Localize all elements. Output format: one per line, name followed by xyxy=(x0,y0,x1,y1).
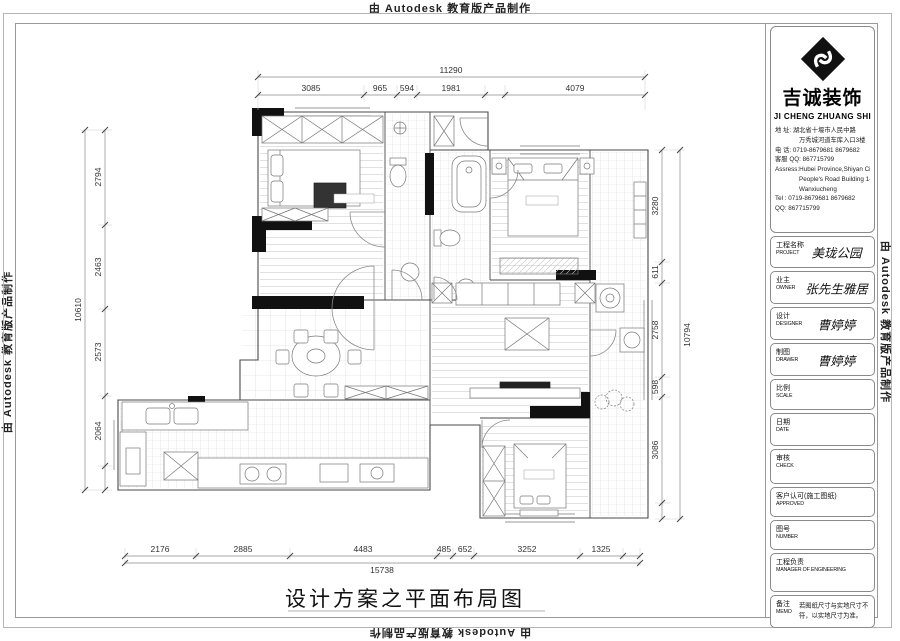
dim-right-seg1: 3280 xyxy=(650,196,660,215)
row-value: 若图纸尺寸与实地尺寸不符，以实地尺寸为准。 xyxy=(799,601,872,622)
dim-right-overall: 10794 xyxy=(682,323,692,347)
dim-left-seg3: 2573 xyxy=(93,342,103,361)
address-line: 电 话: 0719-8679681 8679682 xyxy=(775,146,870,156)
company-address: 地 址: 湖北省十堰市人民中路 万秀城河道车库入口3楼 电 话: 0719-86… xyxy=(771,126,874,214)
dim-right-seg4: 598 xyxy=(650,380,660,394)
row-label-cn: 图号 xyxy=(776,524,874,534)
company-logo-box: 吉诚装饰 JI CHENG ZHUANG SHI 地 址: 湖北省十堰市人民中路… xyxy=(770,26,875,233)
bedroom1-furniture xyxy=(262,116,406,221)
titleblock-row-designer: 设计 DESIGNER 曹婷婷 xyxy=(770,307,875,340)
dim-left-overall: 10610 xyxy=(73,298,83,322)
row-label-cn: 审核 xyxy=(776,453,874,463)
dim-bottom-seg5: 652 xyxy=(458,544,472,554)
titleblock-row-date: 日期 DATE xyxy=(770,413,875,446)
titleblock-row-project: 工程名称 PROJECT 美珑公园 xyxy=(770,236,875,268)
dim-bottom-overall: 15738 xyxy=(370,565,394,575)
address-line: 地 址: 湖北省十堰市人民中路 xyxy=(775,126,870,136)
titleblock-rows: 工程名称 PROJECT 美珑公园 业主 OWNER 张先生雅居 设计 DESI… xyxy=(770,236,875,628)
address-line: 客服 QQ: 867715799 xyxy=(775,155,870,165)
company-name-en: JI CHENG ZHUANG SHI xyxy=(771,112,874,121)
dim-right-seg3: 2758 xyxy=(650,320,660,339)
row-label-en: DATE xyxy=(776,427,874,433)
company-name-cn: 吉诚装饰 xyxy=(771,83,874,110)
dim-top-seg5: 4079 xyxy=(566,83,585,93)
dim-top-seg1: 3085 xyxy=(302,83,321,93)
row-label-en: MANAGER OF ENGINEERING xyxy=(776,567,874,573)
titleblock-row-scale: 比例 SCALE xyxy=(770,379,875,410)
titleblock-row-drawer: 制图 DRAWER 曹婷婷 xyxy=(770,343,875,376)
address-line: 万秀城河道车库入口3楼 xyxy=(775,136,870,146)
dim-bottom-seg6: 3252 xyxy=(518,544,537,554)
row-value: 美珑公园 xyxy=(801,243,872,262)
dim-bottom-seg1: 2176 xyxy=(151,544,170,554)
row-label-en: SCALE xyxy=(776,393,874,399)
dim-right-seg5: 3086 xyxy=(650,440,660,459)
address-line: Tel : 0719-8679681 8679682 xyxy=(775,194,870,204)
dim-right-seg2: 611 xyxy=(650,265,660,279)
dim-left-seg2: 2463 xyxy=(93,257,103,276)
row-label-en: NUMBER xyxy=(776,534,874,540)
row-value: 曹婷婷 xyxy=(801,314,872,333)
row-label-en: APPROVED xyxy=(776,501,874,507)
row-value: 曹婷婷 xyxy=(801,350,872,369)
dim-bottom-seg4: 485 xyxy=(437,544,451,554)
title-block: 吉诚装饰 JI CHENG ZHUANG SHI 地 址: 湖北省十堰市人民中路… xyxy=(765,23,878,618)
dim-bottom-seg3: 4483 xyxy=(354,544,373,554)
row-label-cn: 工程负责 xyxy=(776,557,874,567)
dim-bottom-seg2: 2885 xyxy=(234,544,253,554)
dim-bottom-seg7: 1325 xyxy=(592,544,611,554)
dim-top-seg4: 1981 xyxy=(442,83,461,93)
row-value: 张先生雅居 xyxy=(801,278,872,297)
company-logo-icon xyxy=(799,35,847,83)
drawing-sheet: 由 Autodesk 教育版产品制作 由 Autodesk 教育版产品制作 由 … xyxy=(0,0,900,641)
row-label-en: CHECK xyxy=(776,463,874,469)
address-line: Assress:Hubei Province,Shiyan City xyxy=(775,165,870,175)
row-label-cn: 比例 xyxy=(776,383,874,393)
titleblock-row-number: 图号 NUMBER xyxy=(770,520,875,550)
row-label-cn: 客户认可(施工图纸) xyxy=(776,491,874,501)
titleblock-row-owner: 业主 OWNER 张先生雅居 xyxy=(770,271,875,304)
titleblock-row-engineering: 工程负责 MANAGER OF ENGINEERING xyxy=(770,553,875,592)
address-line: QQ: 867715799 xyxy=(775,204,870,214)
titleblock-row-memo: 备注 MEMO 若图纸尺寸与实地尺寸不符，以实地尺寸为准。 xyxy=(770,595,875,628)
dim-top-overall: 11290 xyxy=(439,65,462,75)
bedroom3-furniture xyxy=(483,444,566,516)
address-line: Wanxiucheng xyxy=(775,185,870,195)
dim-left-seg1: 2794 xyxy=(93,167,103,186)
titleblock-row-approved: 客户认可(施工图纸) APPROVED xyxy=(770,487,875,517)
dim-left-seg4: 2064 xyxy=(93,421,103,440)
titleblock-row-check: 审核 CHECK xyxy=(770,449,875,484)
dim-top-seg3: 594 xyxy=(400,83,414,93)
row-label-cn: 日期 xyxy=(776,417,874,427)
dim-top-seg2: 965 xyxy=(373,83,387,93)
drawing-title: 设计方案之平面布局图 xyxy=(250,583,560,613)
address-line: People's Road Building 1-21 xyxy=(775,175,870,185)
